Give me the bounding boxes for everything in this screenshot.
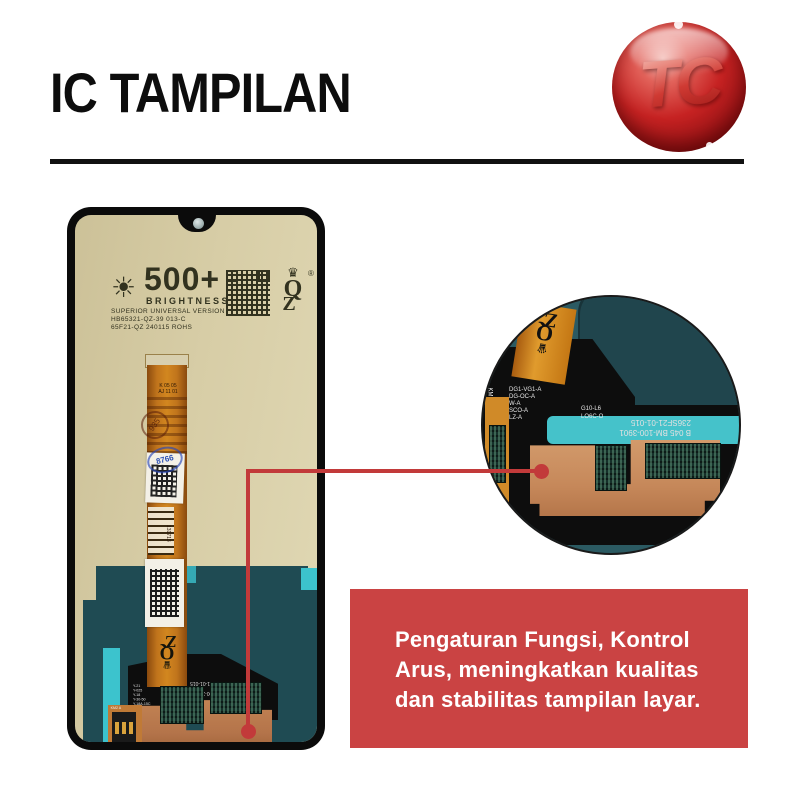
print-line-rohs: 65F21-QZ 240115 ROHS [111,324,192,331]
side-connector-chip [112,712,136,742]
teal-board-left-step [83,600,96,742]
zoomed-label-column: DG1-VG1-A DG-OC-A W-A SCO-A LZ-A [509,387,541,422]
connector-pins [115,721,136,739]
teal-board-right-step [308,590,317,742]
header-divider [50,159,744,164]
qr-finder [226,304,238,316]
orange-strip-left-zoomed: KM [485,397,509,505]
product-image: IC TAMPILAN TC ☀ 500+ BRIGHTNESS SUPERIO… [0,0,800,800]
strip-label: KM [487,388,493,397]
brightness-sun-icon: ☀ [111,271,136,304]
flex-qz-print-zoomed: ♛ Q Z [525,307,564,356]
lcd-assembly: ☀ 500+ BRIGHTNESS SUPERIOR UNIVERSAL VER… [67,207,325,750]
callout-dot-target [534,464,549,479]
camera-hole [193,218,204,229]
callout-line-vertical [246,470,250,731]
page-title: IC TAMPILAN [50,60,351,125]
gold-pin [115,722,119,734]
zoomed-serials: B 045 BM-100-3901 236SF21-01-015 [541,417,691,437]
print-line-version: SUPERIOR UNIVERSAL VERSION [111,308,225,315]
brightness-value: 500+ [144,261,220,298]
tc-logo-letters: TC [610,39,749,124]
description-text: Pengaturan Fungsi, Kontrol Arus, meningk… [395,625,701,715]
qr-finder [258,270,270,282]
flex-label-text: 131713 [165,525,171,542]
lcd-back-panel: ☀ 500+ BRIGHTNESS SUPERIOR UNIVERSAL VER… [75,215,317,742]
sticker-qr-code [150,569,179,617]
flex-qz-print: ♛ Q Z [151,633,183,670]
strip-chip [489,425,506,483]
flex-sticker-2 [145,559,184,627]
brightness-label: BRIGHTNESS [146,296,230,306]
cyan-accent-top-right [301,568,317,590]
logo-spec-top [674,20,683,29]
registered-mark: ® [308,269,314,278]
gold-pin [122,722,126,734]
description-box: Pengaturan Fungsi, Kontrol Arus, meningk… [350,589,748,748]
printed-qr-code [226,270,270,316]
display-ic-chip-right [210,682,262,714]
qr-finder [226,270,238,282]
callout-line-horizontal [246,469,541,473]
ic-chip-zoomed-right [645,443,721,479]
ic-chip-zoomed-left [595,445,627,491]
tc-logo: TC [612,22,746,152]
gold-pin [129,722,133,734]
callout-dot-source [241,724,256,739]
qz-crown-logo: ♛ Q Z [275,267,311,314]
side-connector-label: KM2 A [111,705,122,710]
print-line-model: HB65321-QZ-39 013-C [111,316,186,323]
magnifier-circle: ♛ Q Z KM DG1-VG1-A DG-OC-A W-A SCO-A LZ-… [481,295,741,555]
side-connector: KM2 A [108,705,142,742]
display-ic-chip-left [160,686,204,724]
flex-mark-2: AJ 11 01 [151,389,185,395]
logo-spec-bottom [706,142,713,149]
